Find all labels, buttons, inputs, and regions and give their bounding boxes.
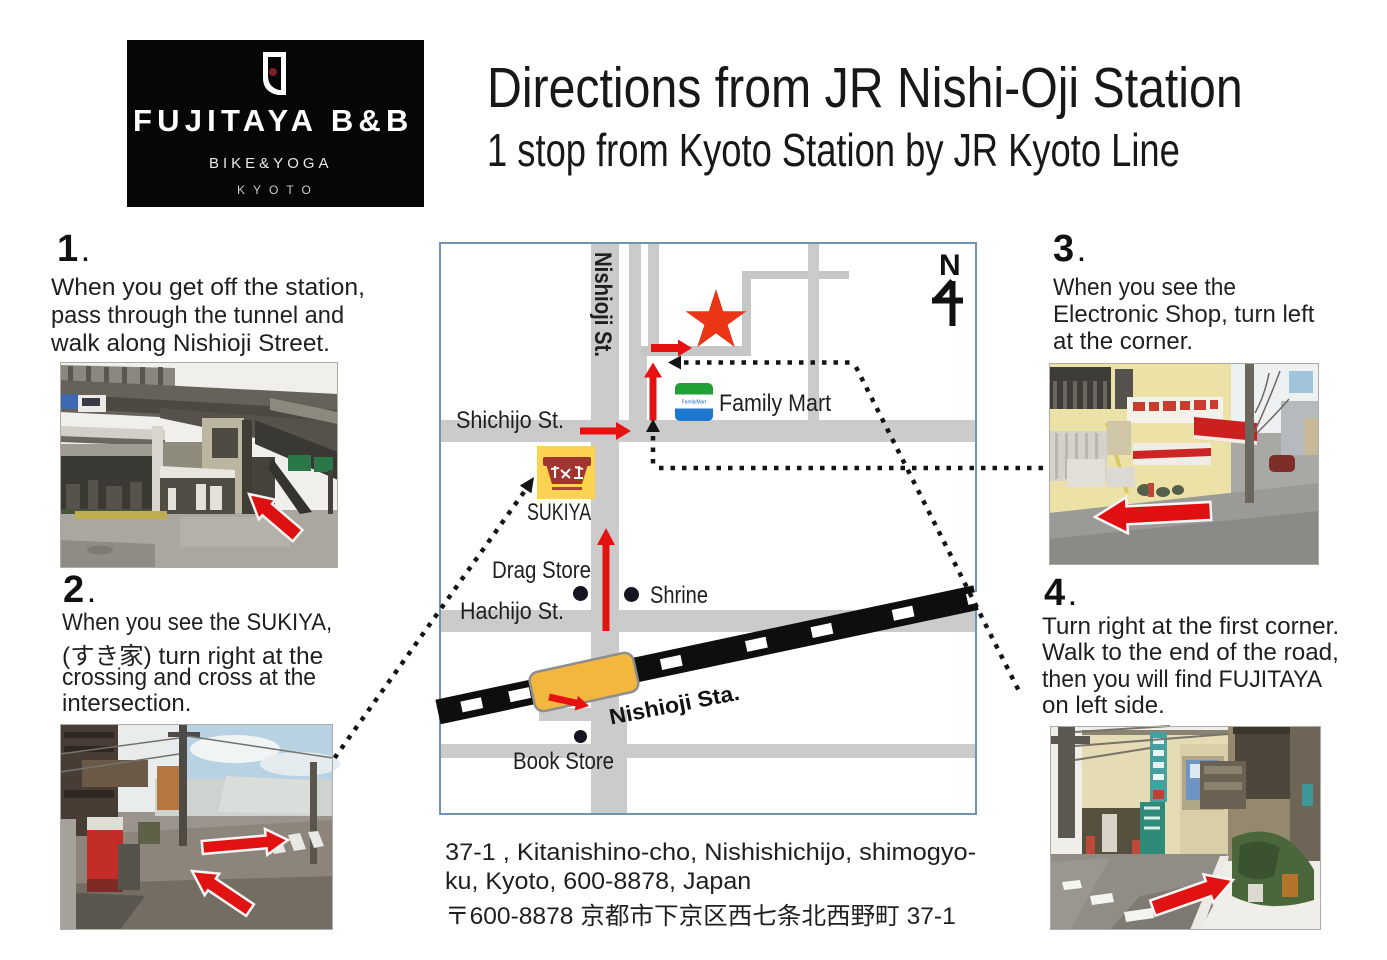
- svg-text:FamilyMart: FamilyMart: [682, 400, 707, 406]
